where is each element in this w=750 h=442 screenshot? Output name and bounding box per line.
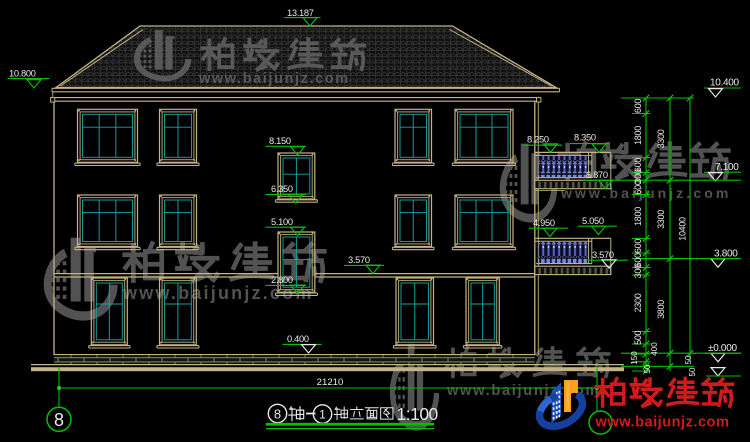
svg-text:3800: 3800 [656,300,666,319]
svg-text:1800: 1800 [633,126,643,145]
svg-text:50: 50 [688,367,697,376]
svg-text:8.350: 8.350 [574,133,596,143]
svg-text:10400: 10400 [678,217,688,241]
svg-text:2.800: 2.800 [271,275,293,285]
svg-text:1800: 1800 [633,207,643,226]
svg-text:150: 150 [630,351,639,365]
svg-text:400: 400 [650,342,659,356]
svg-text:5.050: 5.050 [582,216,604,226]
svg-text:0.400: 0.400 [287,334,309,344]
svg-text:6.870: 6.870 [586,170,608,180]
svg-text:13.187: 13.187 [287,8,314,18]
svg-text:3300: 3300 [656,129,666,148]
svg-text:7.100: 7.100 [715,162,739,173]
svg-text:50: 50 [643,364,652,373]
svg-text:8.150: 8.150 [269,136,291,146]
svg-text:300: 300 [633,264,643,278]
svg-text:21210: 21210 [317,377,344,388]
svg-text:600: 600 [633,180,643,194]
svg-text:3.570: 3.570 [592,250,614,260]
svg-text:500: 500 [633,330,643,344]
svg-text:3.570: 3.570 [348,255,370,265]
svg-text:10.800: 10.800 [9,69,36,79]
svg-text:600: 600 [633,239,643,253]
svg-text:www.baijunjz.com: www.baijunjz.com [595,414,730,430]
svg-text:6.350: 6.350 [271,184,293,194]
svg-text:50: 50 [684,355,693,364]
svg-text:www.baijunjz.com: www.baijunjz.com [198,71,350,87]
svg-text:1: 1 [319,408,326,422]
svg-text:1:100: 1:100 [397,404,439,424]
svg-text:8: 8 [274,406,281,421]
svg-text:2300: 2300 [633,293,643,312]
svg-text:4.950: 4.950 [533,218,555,228]
svg-text:8: 8 [54,410,64,430]
svg-text:600: 600 [633,99,643,113]
svg-text:8.250: 8.250 [527,135,549,145]
svg-text:10.400: 10.400 [710,78,740,89]
svg-text:±0.000: ±0.000 [708,343,737,354]
svg-text:5.100: 5.100 [271,217,293,227]
svg-text:3300: 3300 [656,210,666,229]
svg-text:3.800: 3.800 [714,249,738,260]
